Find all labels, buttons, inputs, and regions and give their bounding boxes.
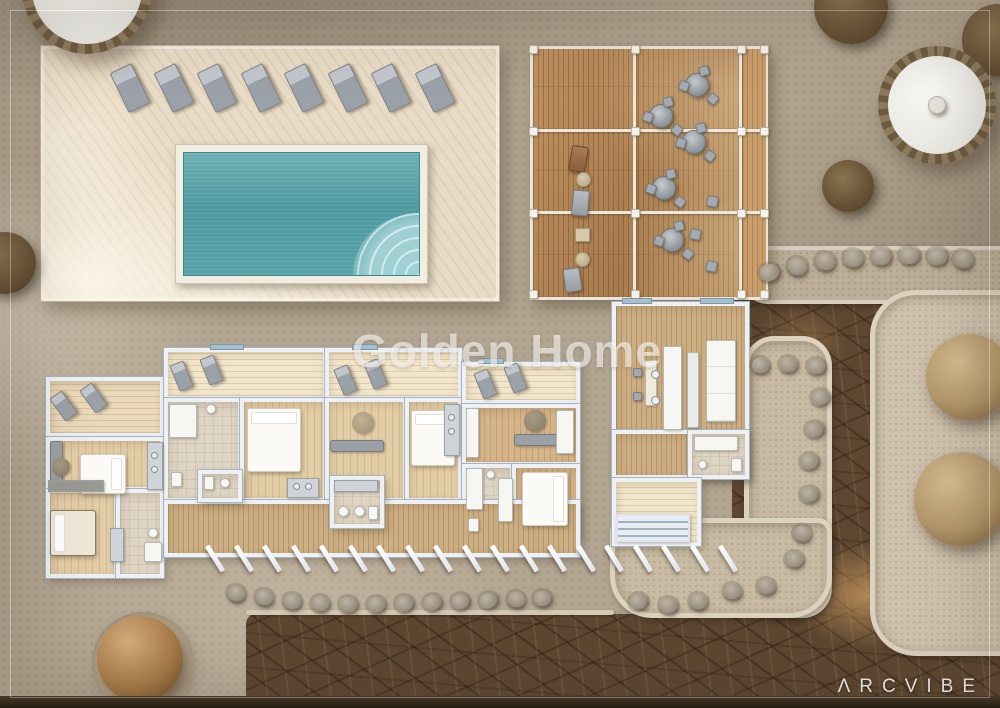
swimming-pool [175,144,428,284]
paving-curb [246,610,614,615]
side-table [576,172,591,187]
bathtub [694,436,738,451]
shower [169,404,197,438]
deck-open-bay [742,49,766,297]
side-table [575,228,590,242]
toilet [204,476,214,490]
beam-connector [529,209,538,218]
washer [338,506,349,517]
parasol-canopy [32,0,142,44]
resort-site-plan-render: Golden Home ΛRCVIBE [0,0,1000,708]
burner [448,428,455,435]
round-rug [524,410,546,432]
sofa [330,440,384,452]
window [210,344,244,350]
shelf [334,480,378,492]
beam-connector [760,45,769,54]
watermark: Golden Home [352,324,662,378]
beam-connector [529,127,538,136]
pool-steps [353,213,419,275]
wardrobe [466,408,479,458]
round-tree [914,452,1000,546]
beam-connector [760,290,769,299]
deck-beam [531,129,766,132]
bathtub [466,468,483,510]
bed [50,510,96,556]
wardrobe [110,528,124,562]
boulder [340,597,357,612]
sink [148,528,158,538]
deck-sunlight [533,49,765,297]
burner [151,452,158,459]
deck-beam [633,47,636,298]
deck-chair [689,228,702,241]
beam-connector [737,209,746,218]
sink [698,460,707,469]
washer [354,506,365,517]
pool-water [183,152,420,276]
beam-connector [631,127,640,136]
brand-logo: ΛRCVIBE [838,676,984,698]
toilet [368,506,378,520]
window [622,298,652,304]
burner [305,483,312,490]
toilet [731,458,742,472]
beam-connector [631,45,640,54]
deck-lounge-chair [571,189,590,216]
beam-connector [529,45,538,54]
deck-chair [706,195,719,208]
annex-steps [616,514,690,542]
sink [220,478,230,488]
burner [293,483,300,490]
bed [247,408,301,472]
shower [144,542,162,562]
beam-connector [737,290,746,299]
wing-room [612,430,692,479]
beam-connector [631,209,640,218]
parasol-pole [928,96,946,114]
round-table [52,458,70,476]
kitchen-island [687,352,699,428]
burner [151,466,158,473]
beam-connector [760,209,769,218]
shrub [822,160,874,212]
toilet [468,518,479,532]
burner [448,414,455,421]
round-rug [352,412,374,434]
boulder [900,247,919,264]
sink [206,404,216,414]
deck-lounge-chair [562,267,582,293]
beam-connector [737,45,746,54]
round-tree [97,616,183,702]
sink [486,470,495,479]
boulder [780,357,797,372]
parasol-top-right [878,46,996,164]
wardrobe [556,410,574,454]
deck-chair [705,260,718,273]
chair [633,392,642,401]
window [700,298,734,304]
deck-beam [531,211,766,214]
bench [48,480,104,492]
toilet [171,472,182,487]
appliance-block [287,478,319,498]
beam-connector [737,127,746,136]
dining-deck [530,46,768,300]
beam-connector [760,127,769,136]
bed [522,472,568,526]
beam-connector [529,290,538,299]
bottom-edge [0,696,1000,708]
deck-beam [739,47,742,298]
cabinet [498,478,513,522]
kitchen-island [663,346,682,430]
side-table [575,252,590,267]
wardrobe-unit [706,340,736,422]
stool [651,396,660,405]
boulder [660,598,677,613]
